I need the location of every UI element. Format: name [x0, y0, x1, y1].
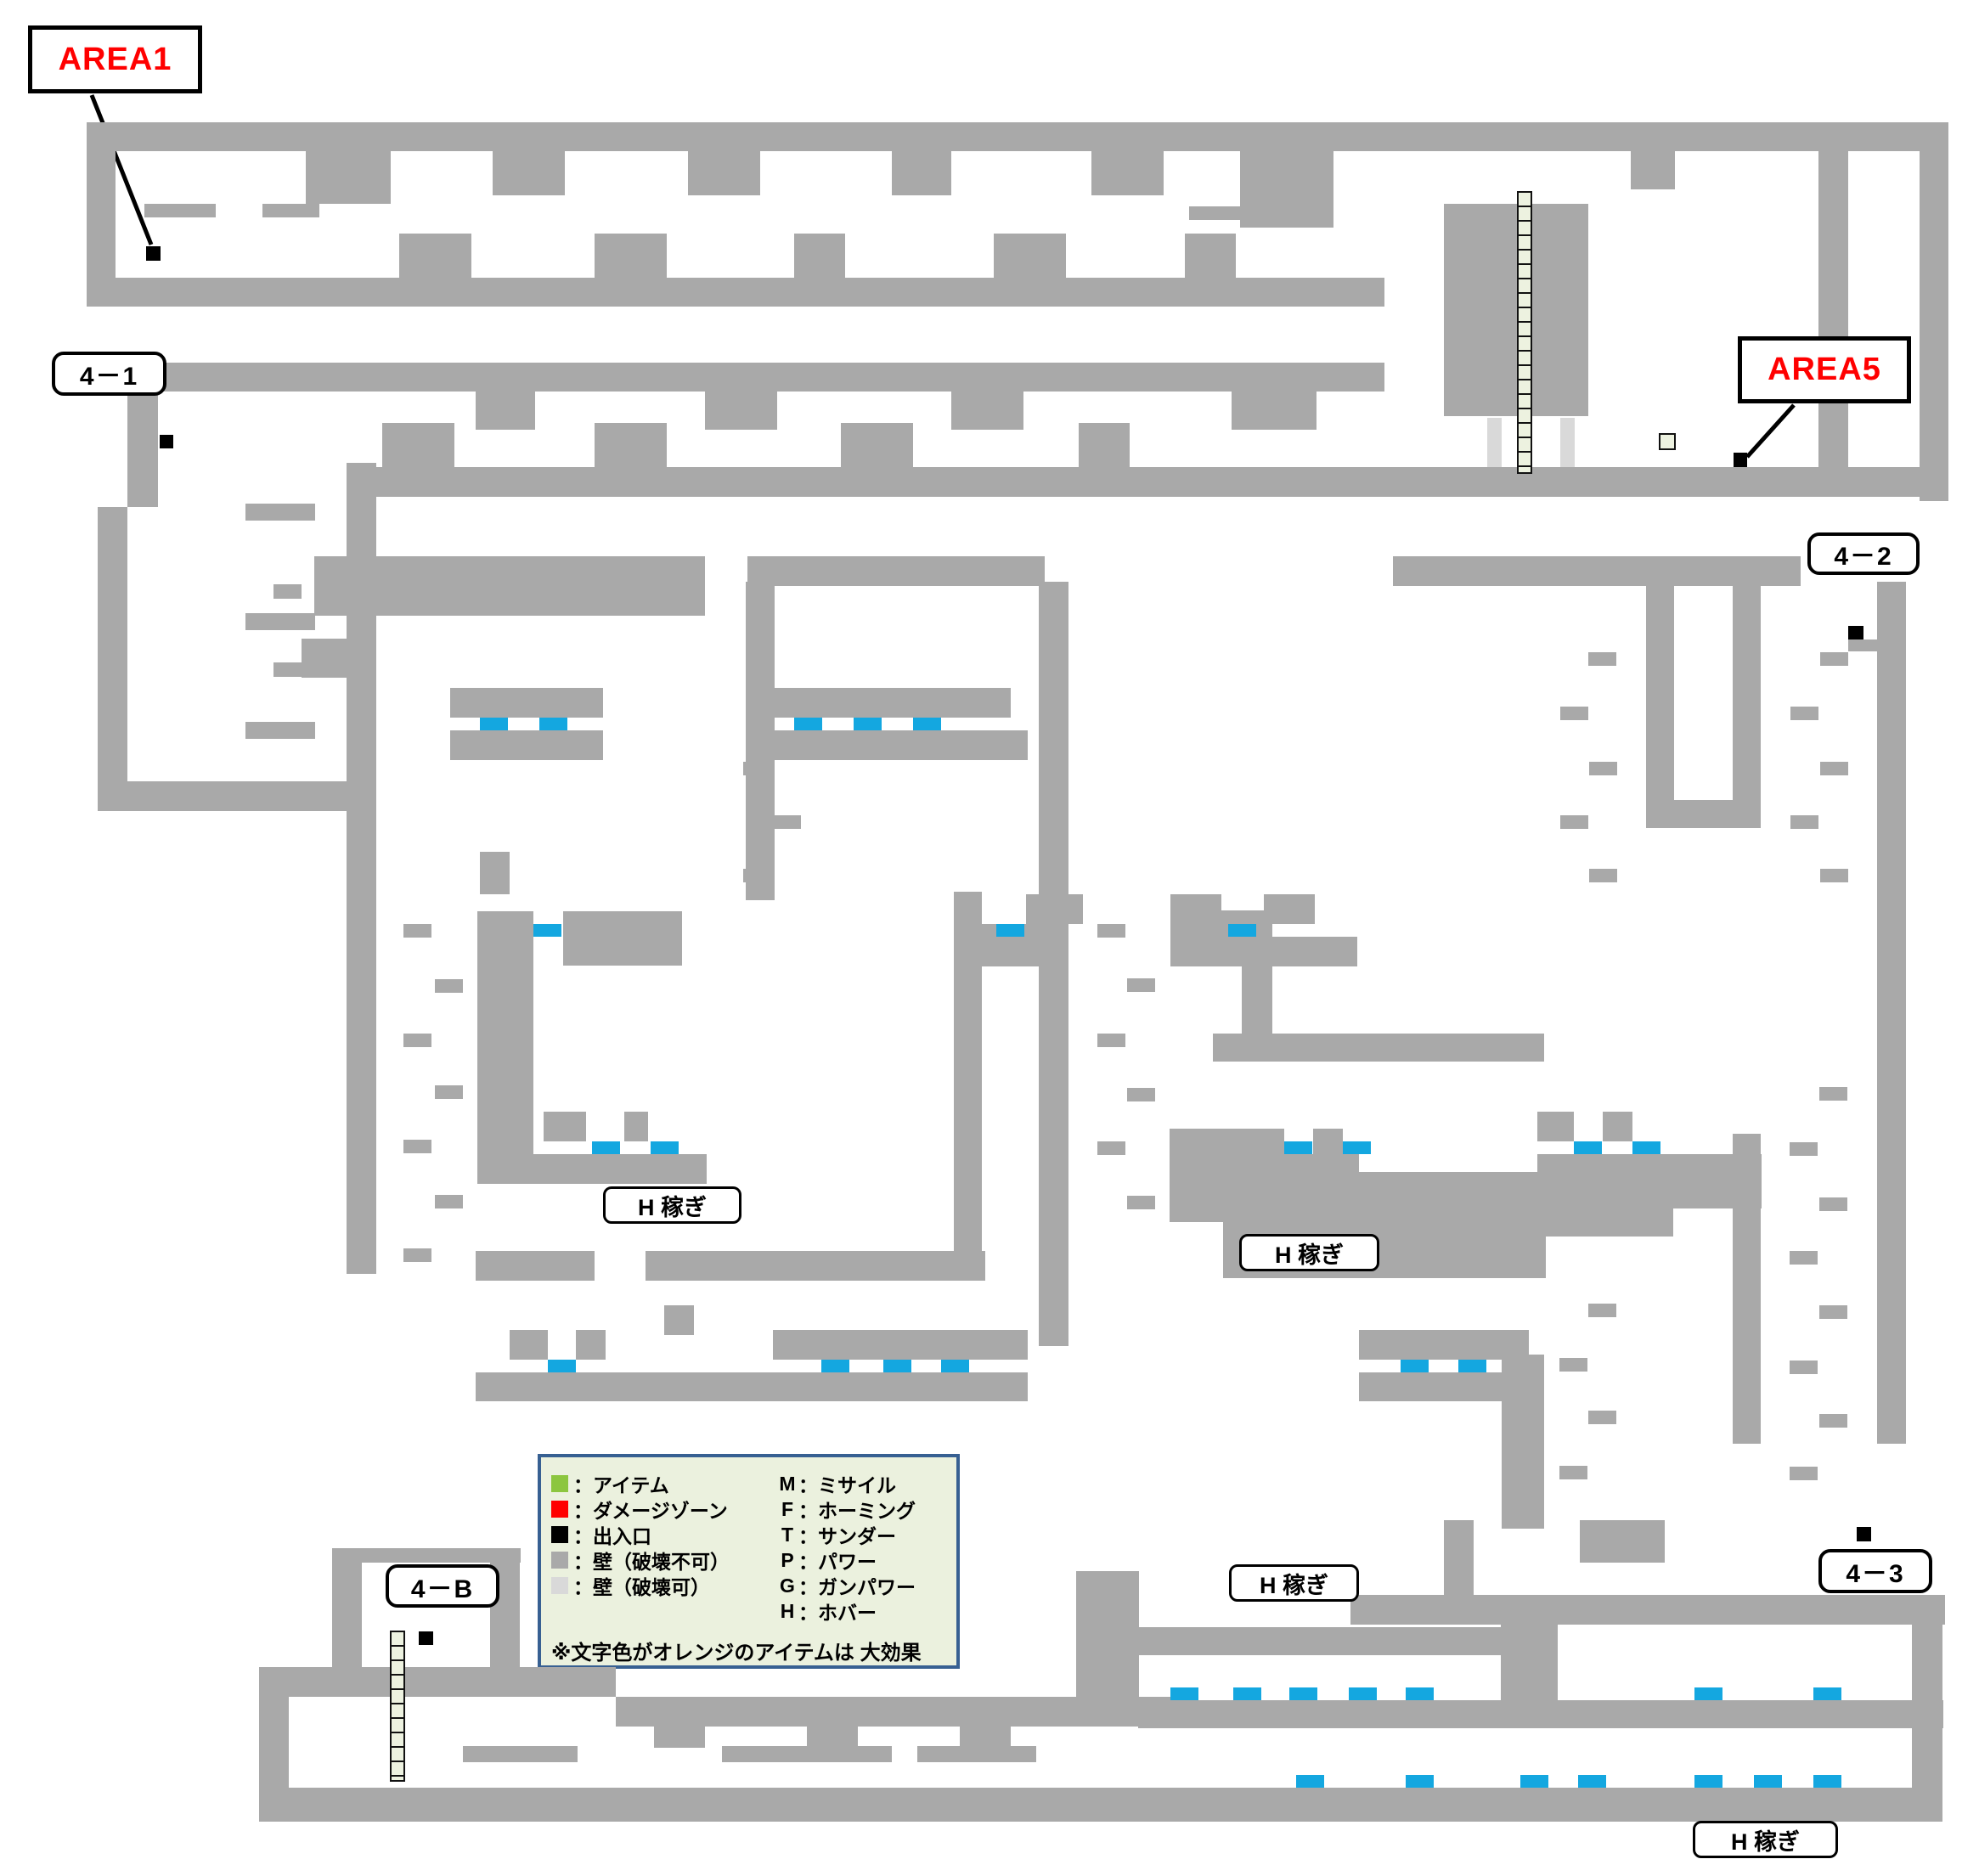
wall-block [87, 122, 1948, 151]
conveyor-marker [548, 1360, 576, 1372]
legend-letter-row: G：ガンパワー [776, 1573, 916, 1598]
conveyor-marker [1228, 924, 1256, 937]
wall-block [664, 1305, 694, 1335]
legend-symbol-label: ：ダメージゾーン [573, 1495, 728, 1524]
wall-block [403, 1140, 431, 1153]
legend-letter-label: ：サンダー [798, 1520, 896, 1549]
wall-block [576, 1330, 606, 1360]
legend-letter-row: F：ホーミング [776, 1496, 916, 1522]
wall-block [1502, 1355, 1544, 1529]
conveyor-marker [1574, 1141, 1602, 1154]
legend-note: ※文字色がオレンジのアイテムは 大効果 [551, 1636, 944, 1665]
wall-block [347, 467, 1948, 497]
wall-block [1039, 582, 1068, 1346]
area-callout-area1: AREA1 [28, 25, 202, 93]
h-farming-tag-text: H 稼ぎ [1275, 1237, 1344, 1270]
breakable-wall-block [1487, 418, 1502, 467]
wall-block [1819, 1087, 1847, 1101]
wall-block [144, 204, 216, 217]
wall-block [477, 911, 533, 1166]
wall-block [1646, 582, 1674, 828]
wall-block [743, 762, 771, 775]
wall-block [1560, 815, 1588, 829]
wall-block [314, 556, 705, 616]
legend-panel: ：アイテム：ダメージゾーン：出入口：壁（破壊不可）：壁（破壊可） M：ミサイルF… [538, 1454, 960, 1669]
conveyor-marker [821, 1360, 849, 1372]
wall-block [1393, 556, 1801, 586]
wall-block [1848, 639, 1877, 651]
conveyor-marker [1406, 1775, 1434, 1788]
legend-letter-label: ：ガンパワー [798, 1571, 916, 1600]
wall-block [1603, 1112, 1632, 1141]
area-callout-area5-text: AREA5 [1768, 352, 1881, 388]
legend-symbol-label: ：出入口 [573, 1520, 651, 1549]
conveyor-marker [1813, 1775, 1841, 1788]
entrance-marker [146, 246, 161, 261]
wall-block [1631, 151, 1675, 189]
wall-block [332, 1563, 362, 1667]
legend-columns: ：アイテム：ダメージゾーン：出入口：壁（破壊不可）：壁（破壊可） M：ミサイルF… [551, 1471, 944, 1624]
legend-symbol-label: ：壁（破壊不可） [573, 1546, 730, 1575]
h-farming-tag-text: H 稼ぎ [1260, 1567, 1328, 1600]
wall-block [477, 1154, 707, 1184]
wall-block [98, 781, 347, 811]
wall-block [1185, 234, 1236, 278]
legend-letter-key: P [776, 1549, 798, 1572]
ladder [390, 1631, 405, 1782]
wall-block [405, 1667, 616, 1697]
h-farming-tag: H 稼ぎ [1693, 1821, 1838, 1858]
wall-block [807, 1727, 858, 1748]
conveyor-marker [539, 718, 567, 730]
wall-block [1232, 392, 1317, 430]
wall-block [493, 151, 565, 195]
conveyor-marker [1401, 1360, 1429, 1372]
wall-block [463, 1746, 578, 1762]
wall-block [1138, 1700, 1943, 1728]
wall-block [399, 234, 471, 278]
wall-block [476, 392, 535, 430]
wall-block [994, 234, 1066, 278]
wall-block [403, 924, 431, 938]
entrance-marker [160, 435, 173, 448]
item-box [1659, 433, 1676, 450]
wall-block [1819, 1305, 1847, 1319]
legend-item-letter-column: M：ミサイルF：ホーミングT：サンダーP：パワーG：ガンパワーH：ホバー [776, 1471, 916, 1624]
wall-block [273, 662, 302, 677]
wall-block [480, 852, 510, 894]
wall-block [624, 1112, 648, 1141]
wall-block [476, 1372, 1028, 1401]
wall-block [87, 122, 116, 292]
wall-block [747, 730, 1028, 760]
wall-block [403, 1248, 431, 1262]
wall-block [1026, 894, 1083, 924]
conveyor-marker [533, 924, 561, 937]
breakable-wall-block [1560, 418, 1575, 467]
wall-block [1790, 815, 1818, 829]
wall-block [1559, 1358, 1587, 1372]
legend-symbol-label: ：アイテム [573, 1469, 669, 1498]
legend-symbol-row: ：アイテム [551, 1471, 776, 1496]
wall-block [1444, 204, 1588, 416]
conveyor-marker [1284, 1141, 1312, 1154]
wall-block [1127, 1196, 1155, 1209]
legend-letter-label: ：ホーミング [798, 1495, 916, 1524]
wall-block [595, 423, 667, 467]
tag-4-b-text: 4－B [411, 1568, 474, 1605]
legend-symbol-label: ：壁（破壊可） [573, 1571, 710, 1600]
legend-letter-label: ：ホバー [798, 1597, 877, 1625]
wall-block [1537, 1154, 1762, 1208]
wall-block [1097, 1141, 1125, 1155]
legend-letter-key: H [776, 1600, 798, 1623]
wall-block [1127, 1088, 1155, 1101]
conveyor-marker [854, 718, 882, 730]
wall-block [98, 507, 127, 781]
wall-block [382, 423, 454, 467]
conveyor-marker [913, 718, 941, 730]
wall-block [1588, 1304, 1616, 1317]
ladder [1517, 191, 1532, 474]
area-callout-area5: AREA5 [1738, 336, 1911, 403]
tag-4-1-text: 4－1 [80, 355, 138, 392]
entrance-marker [1848, 626, 1863, 639]
wall-block [259, 1788, 1942, 1822]
legend-symbol-row: ：壁（破壊可） [551, 1573, 776, 1598]
wall-block [1589, 869, 1617, 882]
wall-block [1091, 151, 1164, 195]
entrance-marker [419, 1631, 433, 1645]
legend-swatch-icon [551, 1552, 568, 1569]
wall-block [764, 688, 1011, 718]
h-farming-tag: H 稼ぎ [1229, 1564, 1359, 1602]
conveyor-marker [1343, 1141, 1371, 1154]
wall-block [1819, 1197, 1847, 1211]
legend-letter-key: G [776, 1575, 798, 1597]
conveyor-marker [794, 718, 822, 730]
wall-block [773, 1330, 1028, 1360]
wall-block [1350, 1595, 1945, 1625]
conveyor-marker [651, 1141, 679, 1154]
wall-block [403, 1034, 431, 1047]
legend-letter-row: M：ミサイル [776, 1471, 916, 1496]
h-farming-tag: H 稼ぎ [603, 1186, 741, 1224]
wall-block [1733, 582, 1761, 828]
wall-block [841, 423, 913, 467]
wall-block [245, 613, 315, 630]
wall-block [1877, 582, 1906, 1444]
conveyor-marker [1694, 1775, 1722, 1788]
wall-block [332, 1548, 521, 1563]
wall-block [1189, 206, 1240, 220]
conveyor-marker [1458, 1360, 1486, 1372]
conveyor-marker [1520, 1775, 1548, 1788]
h-farming-tag: H 稼ぎ [1239, 1234, 1379, 1271]
wall-block [1589, 762, 1617, 775]
wall-block [435, 1085, 463, 1099]
legend-symbol-row: ：壁（破壊不可） [551, 1547, 776, 1573]
wall-block [127, 376, 158, 507]
entrance-marker [1857, 1527, 1871, 1541]
wall-block [1240, 151, 1333, 228]
wall-block [1820, 762, 1848, 775]
wall-block [435, 979, 463, 993]
legend-symbol-column: ：アイテム：ダメージゾーン：出入口：壁（破壊不可）：壁（破壊可） [551, 1471, 776, 1624]
conveyor-marker [996, 924, 1024, 937]
legend-letter-key: M [776, 1473, 798, 1496]
wall-block [1790, 707, 1818, 720]
wall-block [1820, 869, 1848, 882]
wall-block [1920, 122, 1948, 501]
wall-block [1242, 938, 1272, 1034]
conveyor-marker [1349, 1687, 1377, 1700]
wall-block [1313, 1129, 1343, 1154]
wall-block [245, 722, 315, 739]
wall-block [1079, 423, 1130, 467]
conveyor-marker [883, 1360, 911, 1372]
conveyor-marker [1813, 1687, 1841, 1700]
wall-block [1076, 1627, 1510, 1655]
wall-block [1646, 800, 1761, 828]
conveyor-marker [1406, 1687, 1434, 1700]
wall-block [87, 278, 1384, 307]
conveyor-marker [941, 1360, 969, 1372]
conveyor-marker [1296, 1775, 1324, 1788]
wall-block [954, 892, 982, 1274]
wall-block [1170, 910, 1272, 938]
wall-block [1820, 652, 1848, 666]
legend-letter-label: ：ミサイル [798, 1469, 896, 1498]
wall-block [917, 1746, 1036, 1762]
legend-symbol-row: ：ダメージゾーン [551, 1496, 776, 1522]
conveyor-marker [592, 1141, 620, 1154]
entrance-marker [1734, 453, 1747, 467]
legend-letter-key: F [776, 1498, 798, 1521]
h-farming-tag-text: H 稼ぎ [638, 1189, 707, 1222]
legend-letter-label: ：パワー [798, 1546, 877, 1575]
wall-block [306, 151, 391, 204]
wall-block [773, 815, 801, 829]
conveyor-marker [1289, 1687, 1317, 1700]
wall-block [450, 688, 603, 718]
area-callout-area1-text: AREA1 [59, 42, 172, 78]
wall-block [892, 151, 951, 195]
tag-4-3: 4－3 [1818, 1549, 1932, 1593]
wall-block [273, 584, 302, 599]
conveyor-marker [1578, 1775, 1606, 1788]
wall-block [1588, 652, 1616, 666]
game-map-canvas: ：アイテム：ダメージゾーン：出入口：壁（破壊不可）：壁（破壊可） M：ミサイルF… [0, 0, 1979, 1876]
conveyor-marker [1754, 1775, 1782, 1788]
tag-4-2: 4－2 [1807, 532, 1920, 575]
wall-block [1560, 707, 1588, 720]
wall-block [435, 1195, 463, 1208]
wall-block [450, 730, 603, 760]
conveyor-marker [1233, 1687, 1261, 1700]
wall-block [747, 556, 1045, 586]
tag-4-2-text: 4－2 [1834, 535, 1892, 572]
tag-4-3-text: 4－3 [1846, 1552, 1904, 1590]
wall-block [116, 363, 1384, 392]
wall-block [1127, 978, 1155, 992]
legend-letter-row: H：ホバー [776, 1598, 916, 1624]
wall-block [1170, 1129, 1284, 1154]
wall-block [951, 392, 1023, 430]
conveyor-marker [1632, 1141, 1660, 1154]
tag-4-1: 4－1 [52, 352, 166, 396]
legend-swatch-icon [551, 1475, 568, 1492]
wall-block [1790, 1467, 1818, 1480]
legend-letter-row: T：サンダー [776, 1522, 916, 1547]
wall-block [302, 639, 371, 678]
wall-block [1790, 1361, 1818, 1374]
wall-block [1097, 924, 1125, 938]
legend-letter-row: P：パワー [776, 1547, 916, 1573]
wall-block [616, 1697, 1170, 1727]
legend-letter-key: T [776, 1524, 798, 1546]
wall-block [1213, 1034, 1544, 1062]
legend-swatch-icon [551, 1501, 568, 1518]
wall-block [654, 1727, 705, 1748]
legend-swatch-icon [551, 1526, 568, 1543]
callout-leader-line-area5 [1747, 405, 1794, 457]
wall-block [245, 504, 315, 521]
wall-block [960, 1727, 1011, 1748]
wall-block [259, 1667, 289, 1788]
legend-symbol-row: ：出入口 [551, 1522, 776, 1547]
wall-block [1580, 1520, 1665, 1563]
wall-block [743, 869, 771, 882]
wall-block [1790, 1251, 1818, 1265]
wall-block [1588, 1411, 1616, 1424]
wall-block [688, 151, 760, 195]
wall-block [544, 1112, 586, 1141]
legend-swatch-icon [551, 1577, 568, 1594]
conveyor-marker [1694, 1687, 1722, 1700]
h-farming-tag-text: H 稼ぎ [1731, 1823, 1800, 1856]
wall-block [1559, 1466, 1587, 1479]
wall-block [595, 234, 667, 278]
wall-block [794, 234, 845, 278]
wall-block [262, 204, 319, 217]
wall-block [563, 911, 682, 966]
conveyor-marker [480, 718, 508, 730]
wall-block [1444, 1520, 1474, 1595]
wall-block [1819, 1414, 1847, 1428]
conveyor-marker [1170, 1687, 1198, 1700]
wall-block [646, 1251, 985, 1281]
wall-block [1790, 1142, 1818, 1156]
wall-block [722, 1746, 892, 1762]
wall-block [705, 392, 777, 430]
wall-block [1537, 1112, 1574, 1141]
wall-block [1097, 1034, 1125, 1047]
wall-block [1818, 151, 1848, 467]
wall-block [1537, 1208, 1673, 1237]
wall-block [510, 1330, 548, 1360]
tag-4-b: 4－B [386, 1564, 499, 1608]
wall-block [476, 1251, 595, 1281]
